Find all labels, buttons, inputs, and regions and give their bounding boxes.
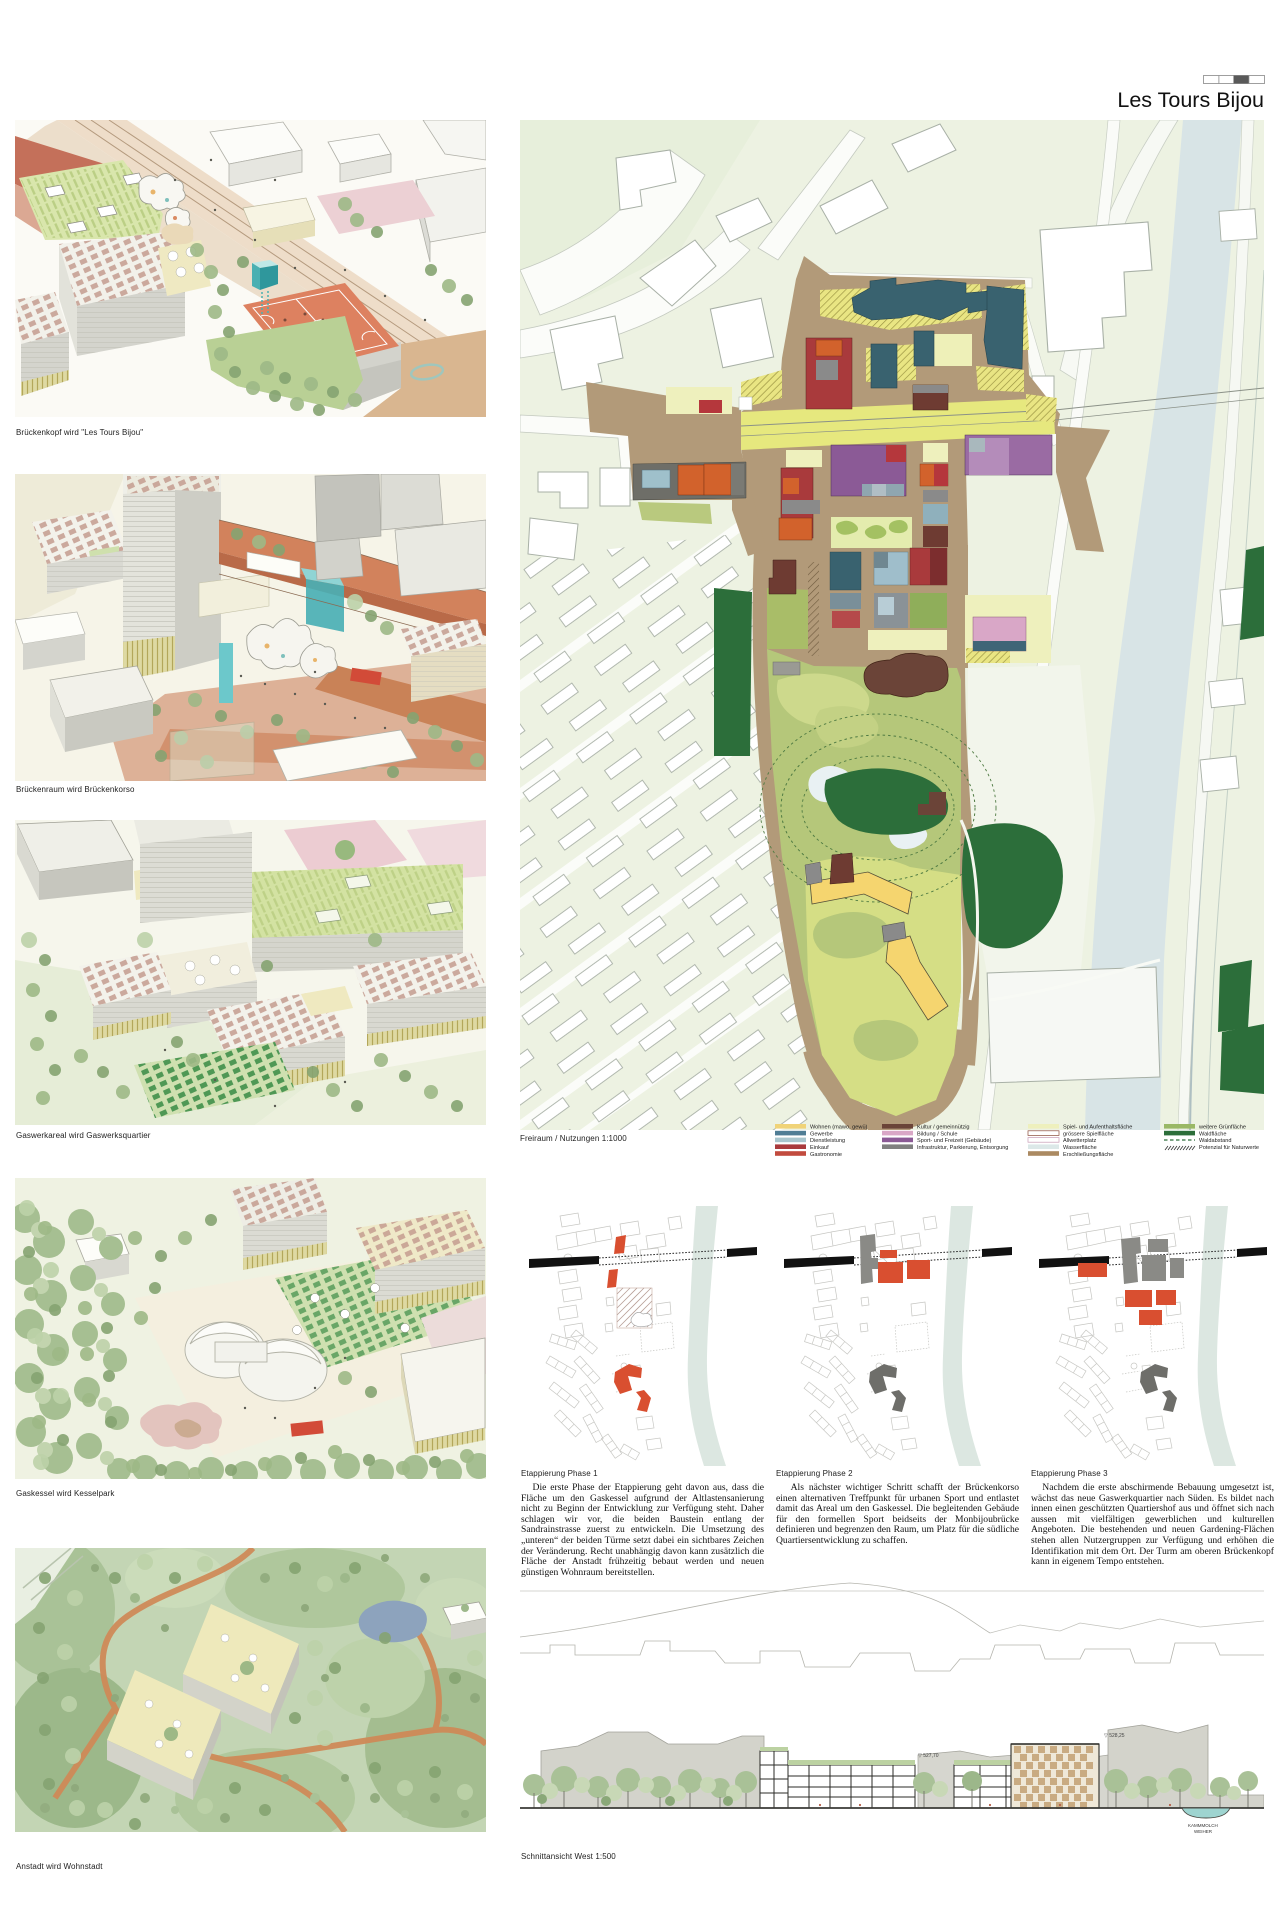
svg-text:Wohnen (mawo, gewü): Wohnen (mawo, gewü) [810, 1125, 868, 1131]
svg-text:Wasserfläche: Wasserfläche [1063, 1145, 1097, 1151]
svg-text:Kultur / gemeinnützig: Kultur / gemeinnützig [917, 1125, 970, 1131]
svg-text:Einkauf: Einkauf [810, 1145, 829, 1151]
svg-text:Erschließungsfläche: Erschließungsfläche [1063, 1152, 1113, 1158]
svg-text:▽ 527,70: ▽ 527,70 [918, 1753, 939, 1759]
svg-text:Infrastruktur, Parkierung, Ent: Infrastruktur, Parkierung, Entsorgung [917, 1145, 1008, 1151]
svg-text:grössere Spielfläche: grössere Spielfläche [1063, 1131, 1114, 1137]
svg-text:Allwetterplatz: Allwetterplatz [1063, 1138, 1096, 1144]
svg-text:Spiel- und Aufenthaltsfläche: Spiel- und Aufenthaltsfläche [1063, 1125, 1132, 1131]
svg-text:Potenzial für Naturwerte: Potenzial für Naturwerte [1199, 1145, 1259, 1151]
svg-text:Waldfläche: Waldfläche [1199, 1131, 1226, 1137]
svg-text:WEIHER: WEIHER [1194, 1829, 1213, 1834]
svg-text:Bildung / Schule: Bildung / Schule [917, 1131, 957, 1137]
svg-text:KAMMMOLCH: KAMMMOLCH [1188, 1823, 1218, 1828]
svg-text:Sport- und Freizeit (Gebäude): Sport- und Freizeit (Gebäude) [917, 1138, 991, 1144]
svg-text:Waldabstand: Waldabstand [1199, 1138, 1231, 1144]
svg-text:weitere Grünfläche: weitere Grünfläche [1198, 1125, 1246, 1131]
svg-text:Gastronomie: Gastronomie [810, 1152, 842, 1158]
svg-text:Dienstleistung: Dienstleistung [810, 1138, 845, 1144]
svg-text:Gewerbe: Gewerbe [810, 1131, 833, 1137]
svg-text:▽ 528,25: ▽ 528,25 [1104, 1733, 1125, 1739]
